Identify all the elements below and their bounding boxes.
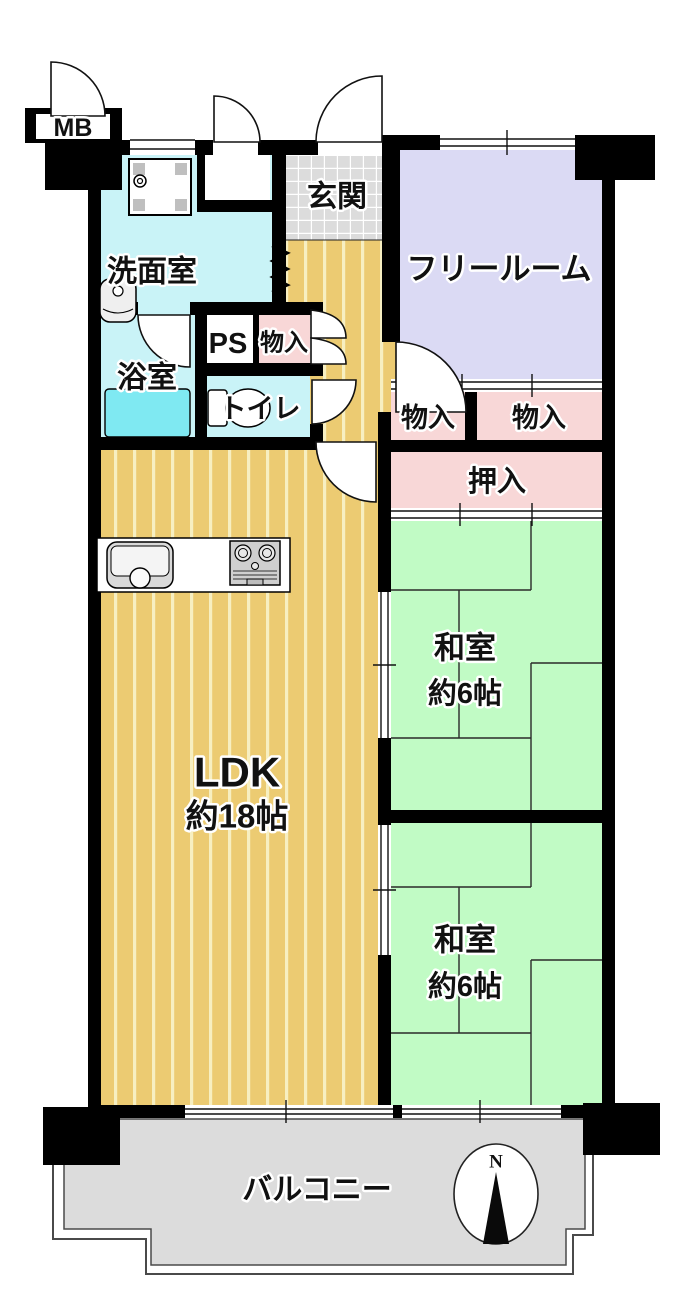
- floorplan-drawing: N MB 玄関 洗面室 フリールーム PS 物入 浴室 トイレ 物入 物入 押入…: [0, 0, 690, 1293]
- washroom-window: [130, 137, 195, 152]
- ldk-east-wall: [378, 955, 391, 1105]
- mb-label: MB: [54, 114, 93, 142]
- left-outer-wall: [88, 140, 101, 1118]
- japanese-room-1-label: 和室: [434, 631, 496, 666]
- japanese-room-1-size: 約6帖: [428, 676, 502, 710]
- entrance-door-swing: [316, 76, 382, 142]
- right-outer-wall: [602, 135, 615, 1118]
- bathtub: [105, 389, 190, 437]
- compass: N: [454, 1144, 538, 1244]
- bottom-wall: [393, 1105, 402, 1118]
- oshiire-label: 押入: [468, 465, 526, 498]
- entrance-top-wall: [286, 140, 318, 155]
- japanese-room-2-label: 和室: [434, 923, 496, 958]
- top-wall: [258, 140, 286, 155]
- storage-right-label: 物入: [512, 403, 566, 433]
- balcony-left-pier: [43, 1107, 120, 1165]
- storage-bottom-wall: [378, 440, 602, 452]
- japanese-room-2-floor: [391, 823, 602, 1105]
- floorplan-canvas: N MB 玄関 洗面室 フリールーム PS 物入 浴室 トイレ 物入 物入 押入…: [0, 0, 690, 1293]
- stove: [230, 541, 280, 585]
- bath-ps-wall: [195, 315, 207, 437]
- washitsu-divider-wall: [378, 810, 615, 823]
- free-room-label: フリールーム: [406, 252, 591, 287]
- japanese-room-2-size: 約6帖: [428, 969, 502, 1003]
- ps-storage-divider-wall: [253, 315, 259, 363]
- compass-north-label: N: [489, 1152, 503, 1173]
- ldk-size: 約18帖: [186, 798, 289, 835]
- kitchen-sink: [107, 542, 173, 588]
- block-bottom-wall: [101, 437, 317, 450]
- closet-bottom-wall: [197, 200, 272, 212]
- washing-machine: [129, 159, 191, 215]
- ldk-label: LDK: [194, 749, 280, 796]
- toilet-label: トイレ: [220, 394, 301, 424]
- hall-closet-door-swing: [214, 96, 260, 142]
- entrance-label: 玄関: [307, 180, 367, 214]
- storage-by-ps-label: 物入: [260, 330, 308, 357]
- bath-door-gap: [138, 302, 190, 315]
- balcony-right-pier: [583, 1103, 660, 1155]
- bathroom-label: 浴室: [117, 361, 177, 395]
- top-wall: [88, 140, 130, 155]
- hall-closet-floor: [205, 155, 270, 200]
- pipe-space-label: PS: [209, 328, 248, 360]
- storage-divider-wall: [465, 392, 477, 440]
- kitchen-counter: [97, 538, 290, 592]
- top-wall: [195, 140, 213, 155]
- washroom-bath-wall: [190, 302, 323, 315]
- floor-areas: [101, 150, 602, 1105]
- japanese-room-1-floor: [391, 521, 602, 810]
- freeroom-left-wall: [382, 135, 400, 342]
- ps-toilet-wall: [207, 363, 323, 376]
- ldk-east-wall: [378, 412, 391, 592]
- washroom-label: 洗面室: [107, 255, 197, 289]
- freeroom-top-wall: [400, 135, 440, 150]
- balcony-label: バルコニー: [242, 1174, 391, 1207]
- storage-left-label: 物入: [401, 403, 455, 433]
- mb-door-swing: [51, 62, 105, 116]
